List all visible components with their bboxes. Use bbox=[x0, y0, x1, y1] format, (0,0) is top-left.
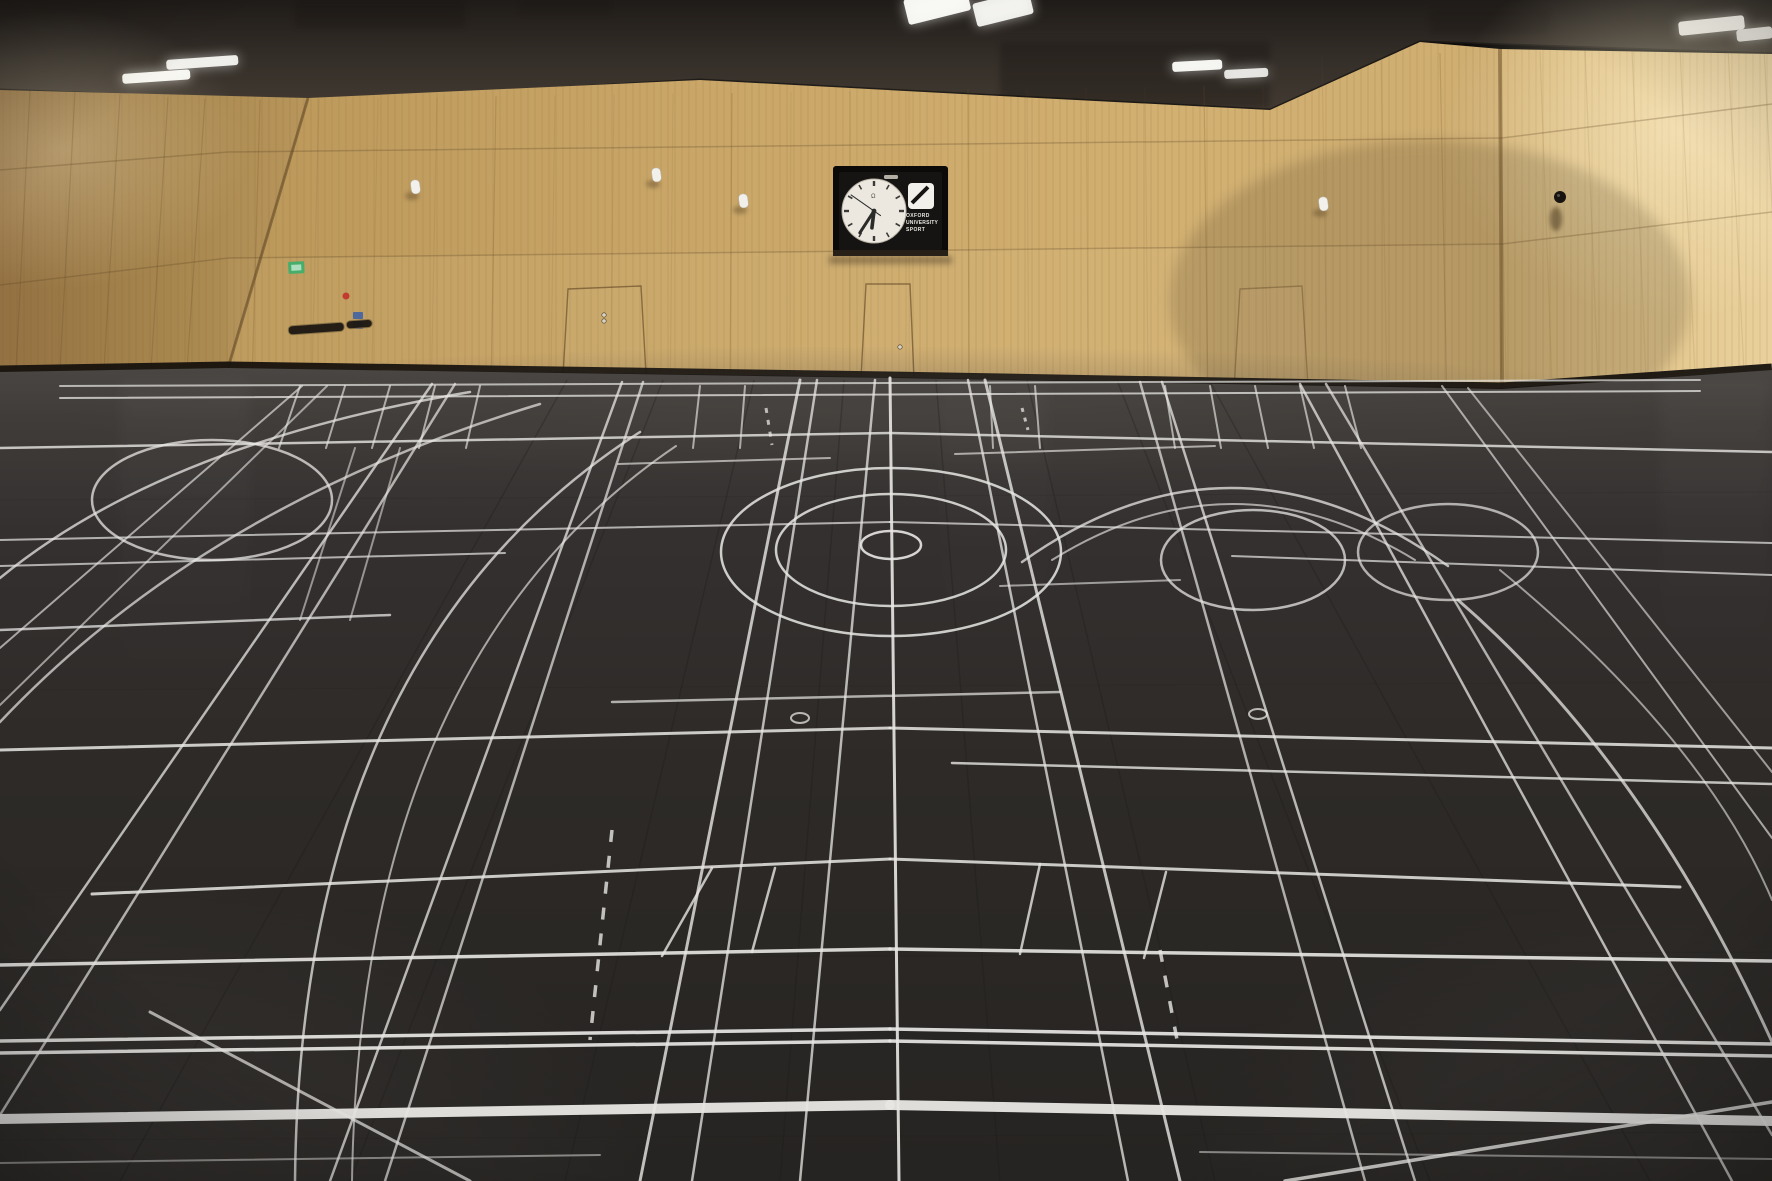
scene-canvas: OXFORD UNIVERSITY SPORT Ω bbox=[0, 0, 1772, 1181]
sports-hall-photo: OXFORD UNIVERSITY SPORT Ω bbox=[0, 0, 1772, 1181]
vignette bbox=[0, 0, 1772, 1181]
